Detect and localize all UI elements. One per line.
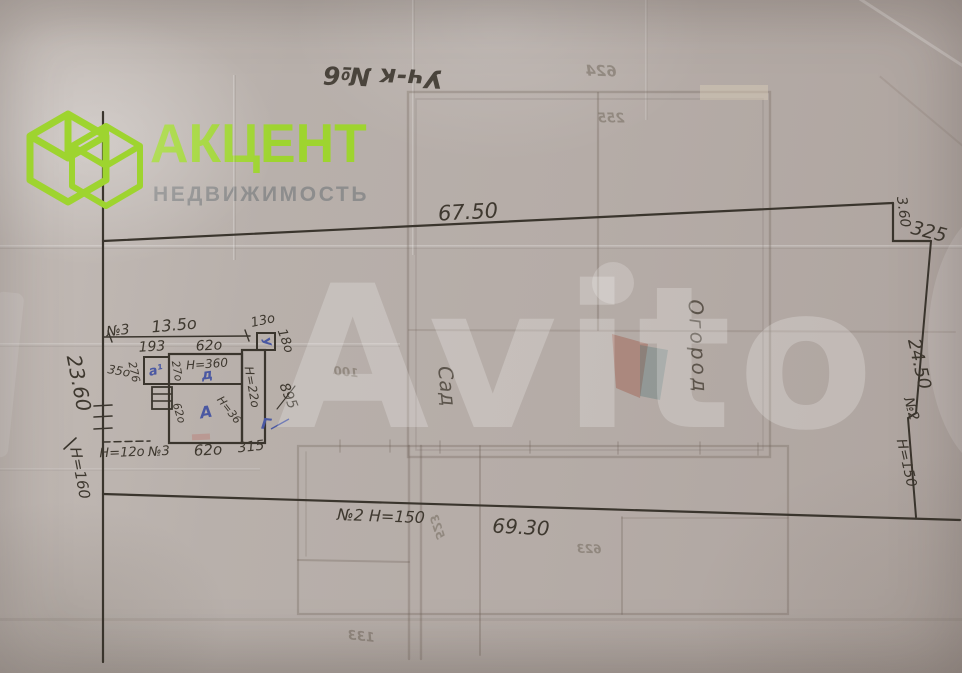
pink-mark: [192, 433, 210, 440]
avito-watermark-text: Avito: [276, 243, 880, 474]
avito-watermark-circle: [592, 262, 634, 304]
house-dim-620-bottom: 62о: [193, 440, 222, 459]
bleed-number: 133: [347, 628, 376, 646]
dim-bottom-length: 69.30: [492, 514, 550, 541]
bleed-number: 623: [576, 542, 602, 557]
building-letter-g: Г: [260, 415, 271, 434]
house-dim-315: 315: [237, 438, 265, 457]
building-letter-d: д: [200, 366, 213, 383]
bleed-number: 255: [597, 112, 624, 127]
scanned-plot-plan-photo: Уч-к №6 67.50 3.60 325 24.50 №2 Н=150 23…: [0, 0, 962, 673]
plot-title: Уч-к №6: [323, 60, 444, 93]
akcent-logo-icon: [0, 0, 150, 230]
bleed-number: 624: [585, 61, 617, 80]
house-setback-number: №3: [105, 322, 130, 341]
house-dim-193: 193: [138, 338, 166, 355]
house-number-3: №3: [148, 444, 171, 460]
house-height-120: Н=12о: [99, 445, 145, 462]
house-dim-620-top: 62о: [195, 337, 222, 354]
bleed-highlight: [700, 85, 768, 100]
building-letter-a1: а¹: [147, 362, 164, 380]
house-setback-length: 13.5о: [151, 314, 198, 337]
dim-top-length: 67.50: [437, 198, 498, 225]
bottom-boundary-note: №2 Н=150: [337, 505, 426, 527]
